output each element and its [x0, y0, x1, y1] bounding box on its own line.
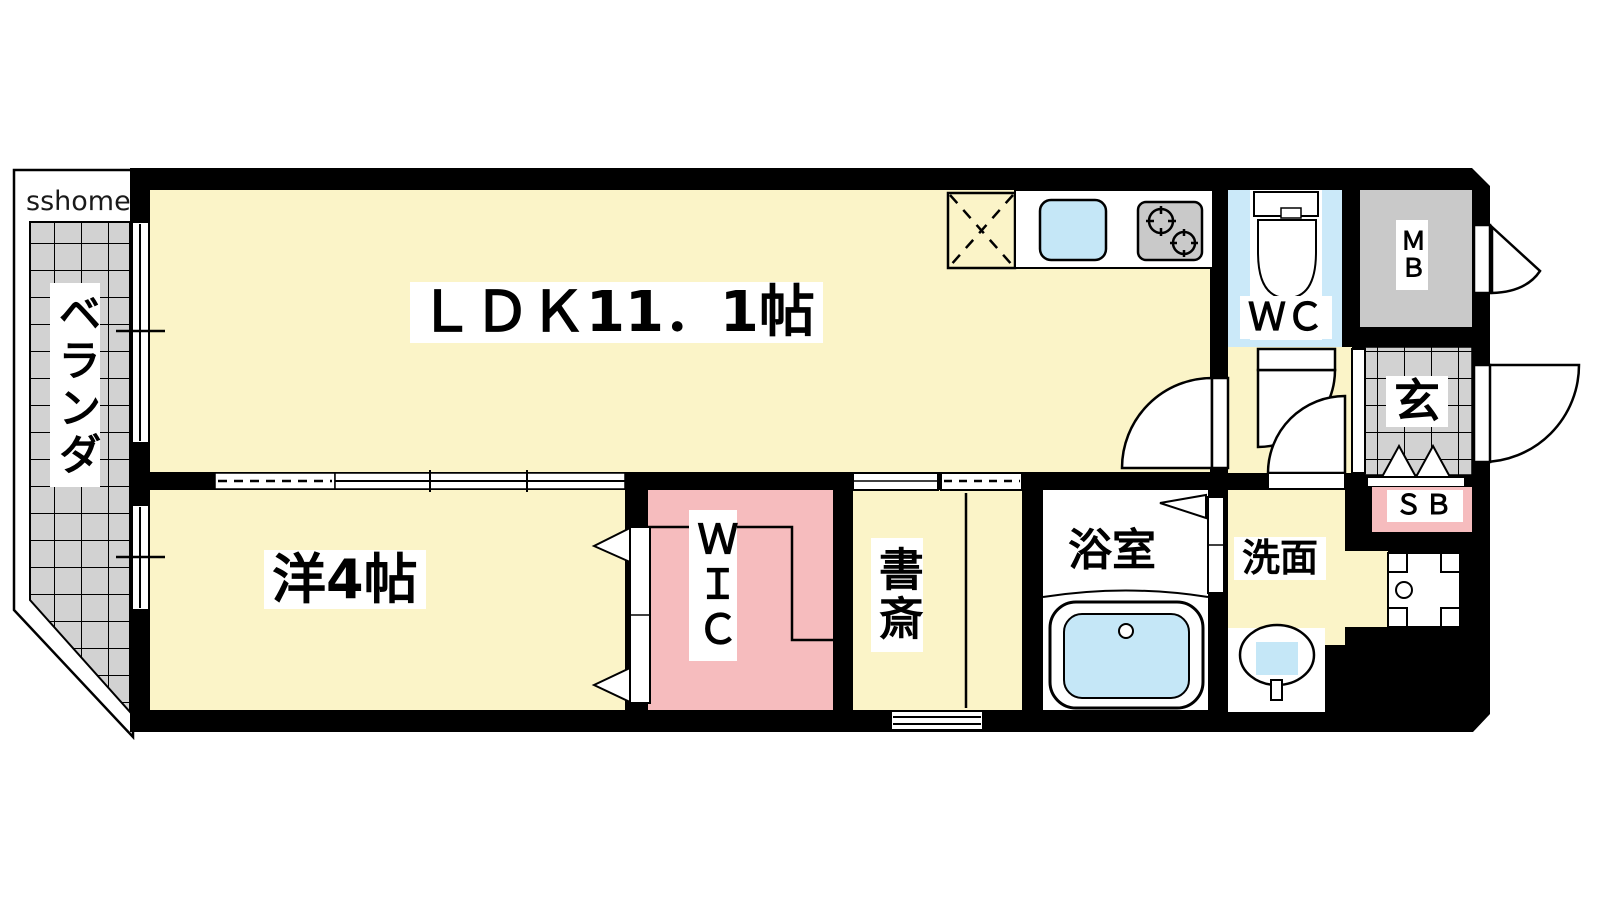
western-room-label: 洋4帖 [264, 550, 426, 609]
washroom-door-leaf [1268, 473, 1345, 489]
entrance-door-arc [1482, 365, 1579, 462]
washing-machine-drain [1396, 582, 1412, 598]
watermark-text: sshome [26, 186, 131, 217]
washing-machine-icon [1388, 553, 1460, 627]
toilet-icon [1254, 192, 1318, 298]
wall-bottom [130, 710, 1490, 732]
entrance-label: 玄 [1386, 376, 1448, 427]
bathroom-label: 浴室 [1060, 527, 1164, 576]
wc-label: ＷＣ [1240, 296, 1332, 339]
floor-plan: sshome ベランダ ＬＤＫ11．1帖 洋4帖 ＷＩＣ 書斎 浴室 洗面 ＷＣ… [0, 0, 1600, 900]
ldk-door-leaf [1212, 378, 1228, 468]
wall-basin-side [1325, 645, 1345, 710]
floor-wic [648, 490, 833, 710]
wic-label: ＷＩＣ [689, 510, 737, 661]
meter-box-door-arc [1492, 227, 1540, 293]
wc-door-leaf [1258, 349, 1335, 370]
washroom-label: 洗面 [1234, 537, 1326, 580]
floor-plan-drawing [0, 0, 1600, 900]
partition-ldk-study [853, 473, 1022, 490]
entrance-frame-strip [1352, 349, 1365, 473]
washbasin-tap [1271, 680, 1282, 700]
bathtub-drain [1119, 624, 1133, 638]
wall-wc-mb [1342, 168, 1360, 349]
wall-study-bath [1022, 472, 1043, 710]
toilet-bowl [1258, 220, 1316, 298]
wall-mb-bottom [1360, 327, 1472, 347]
veranda-label: ベランダ [50, 283, 100, 487]
kitchen-sink-icon [1040, 200, 1106, 260]
bathtub-icon [1043, 591, 1208, 709]
toilet-button [1281, 208, 1301, 218]
meter-box-label: ＭＢ [1396, 220, 1428, 290]
ldk-label: ＬＤＫ11．1帖 [410, 282, 823, 343]
washbasin-water [1256, 642, 1298, 675]
window-study-south [891, 711, 983, 730]
wall-top [130, 168, 1490, 190]
shoe-box-label: ＳＢ [1387, 490, 1463, 522]
meter-box-door-leaf [1474, 225, 1490, 293]
study-label: 書斎 [871, 538, 923, 652]
wall-wic-study [833, 472, 853, 710]
floor-washroom-extension [1345, 551, 1388, 627]
entrance-step-strip [1367, 477, 1465, 487]
partition-ldk-western [215, 470, 625, 492]
kitchen [948, 190, 1213, 268]
entrance-door-leaf [1474, 365, 1490, 462]
